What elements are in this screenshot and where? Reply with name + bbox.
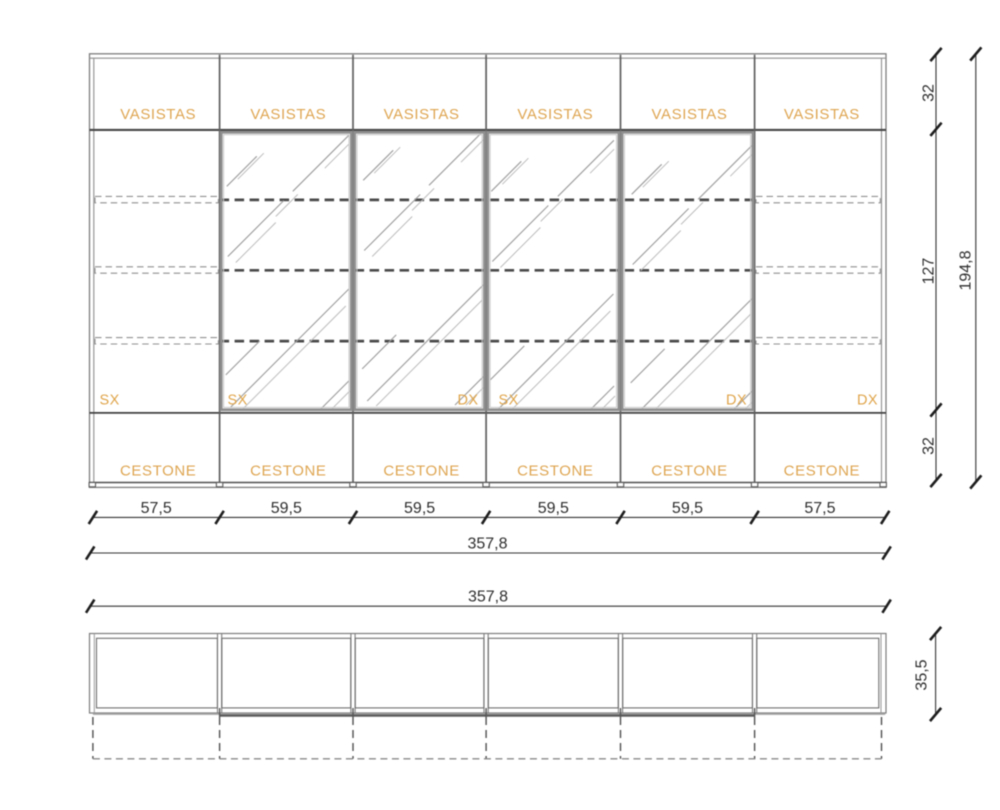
svg-text:57,5: 57,5 [804,500,835,517]
svg-text:59,5: 59,5 [271,500,302,517]
svg-text:32: 32 [921,84,938,102]
svg-text:DX: DX [726,393,747,409]
svg-text:59,5: 59,5 [538,500,569,517]
svg-text:CESTONE: CESTONE [383,463,459,480]
svg-text:CESTONE: CESTONE [651,463,727,480]
svg-text:57,5: 57,5 [141,500,172,517]
svg-text:DX: DX [857,393,878,409]
svg-text:DX: DX [458,393,479,409]
svg-text:VASISTAS: VASISTAS [517,106,593,123]
svg-text:59,5: 59,5 [672,500,703,517]
svg-text:59,5: 59,5 [404,500,435,517]
svg-text:35,5: 35,5 [914,659,931,690]
svg-text:357,8: 357,8 [467,535,507,552]
svg-text:CESTONE: CESTONE [250,463,326,480]
svg-text:SX: SX [100,393,120,409]
svg-text:SX: SX [228,393,248,409]
svg-text:357,8: 357,8 [468,589,508,606]
svg-text:CESTONE: CESTONE [120,463,196,480]
svg-text:CESTONE: CESTONE [784,463,860,480]
svg-text:VASISTAS: VASISTAS [784,106,860,123]
svg-text:127: 127 [921,258,938,285]
svg-text:VASISTAS: VASISTAS [652,106,728,123]
svg-text:194,8: 194,8 [958,250,975,290]
svg-text:SX: SX [499,393,519,409]
svg-text:CESTONE: CESTONE [517,463,593,480]
svg-text:VASISTAS: VASISTAS [384,106,460,123]
svg-text:VASISTAS: VASISTAS [120,106,196,123]
svg-text:32: 32 [921,437,938,455]
svg-text:VASISTAS: VASISTAS [250,106,326,123]
